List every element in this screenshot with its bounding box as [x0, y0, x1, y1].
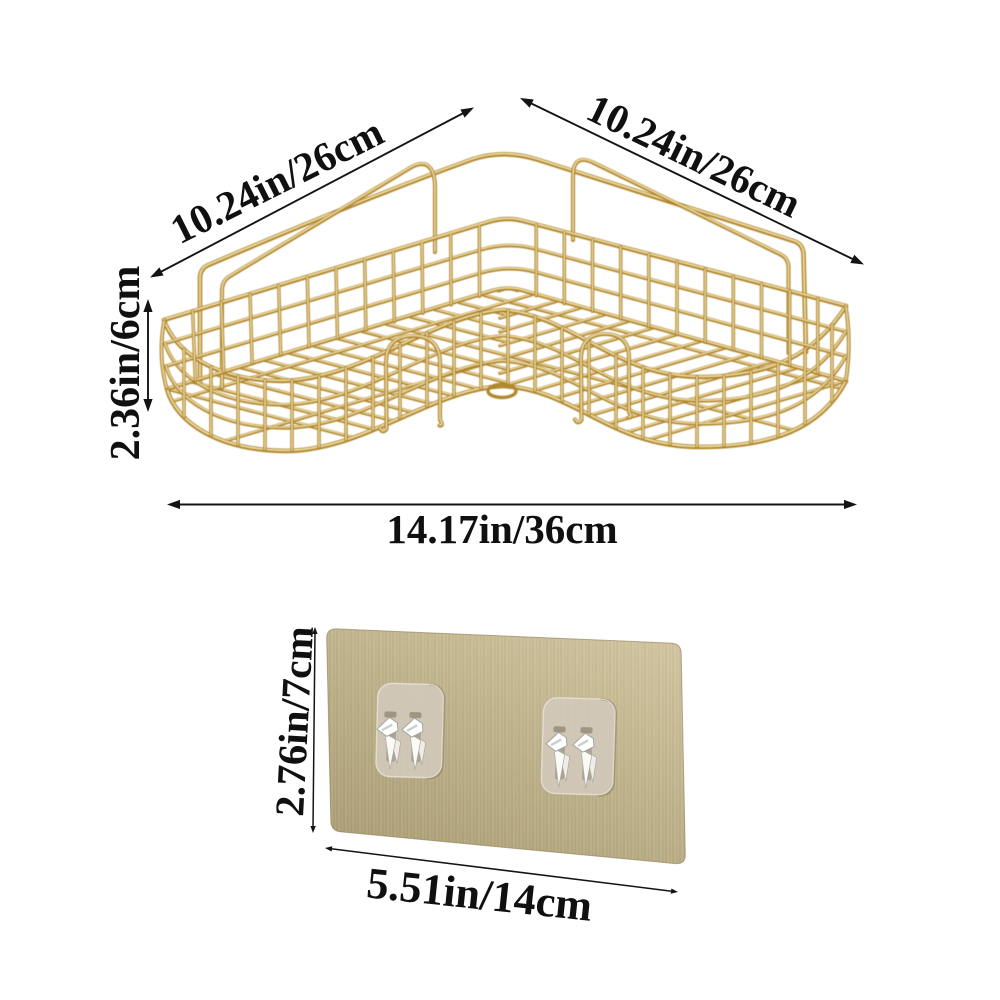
svg-text:2.36in/6cm: 2.36in/6cm	[103, 266, 149, 461]
svg-text:10.24in/26cm: 10.24in/26cm	[163, 108, 390, 253]
svg-text:5.51in/14cm: 5.51in/14cm	[365, 858, 595, 930]
svg-text:10.24in/26cm: 10.24in/26cm	[580, 84, 808, 226]
svg-text:14.17in/36cm: 14.17in/36cm	[386, 506, 617, 552]
